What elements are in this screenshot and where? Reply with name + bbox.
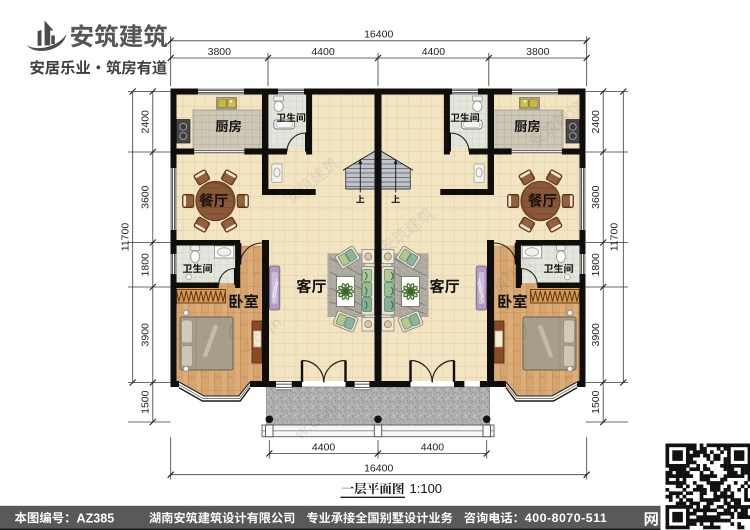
svg-text:4400: 4400 [312, 441, 336, 453]
svg-text:1800: 1800 [140, 253, 152, 277]
svg-text:3900: 3900 [590, 323, 602, 347]
svg-text:3600: 3600 [140, 185, 152, 209]
svg-text:11700: 11700 [609, 223, 621, 252]
svg-text:3600: 3600 [590, 185, 602, 209]
svg-text:2400: 2400 [590, 110, 602, 134]
svg-text:3900: 3900 [140, 323, 152, 347]
svg-text:400-8070-511: 400-8070-511 [525, 511, 607, 525]
svg-text:3800: 3800 [208, 46, 232, 58]
svg-text:4400: 4400 [311, 46, 335, 58]
svg-text:1500: 1500 [140, 390, 152, 414]
svg-text:1:100: 1:100 [410, 481, 443, 496]
svg-text:11700: 11700 [119, 223, 131, 252]
svg-text:1500: 1500 [590, 390, 602, 414]
svg-text:16400: 16400 [364, 463, 393, 475]
svg-text:AZ385: AZ385 [77, 511, 115, 525]
svg-text:4400: 4400 [421, 441, 445, 453]
svg-text:1800: 1800 [590, 253, 602, 277]
svg-text:16400: 16400 [364, 29, 393, 41]
svg-text:2400: 2400 [140, 110, 152, 134]
svg-text:3800: 3800 [526, 46, 550, 58]
svg-text:4400: 4400 [422, 46, 446, 58]
